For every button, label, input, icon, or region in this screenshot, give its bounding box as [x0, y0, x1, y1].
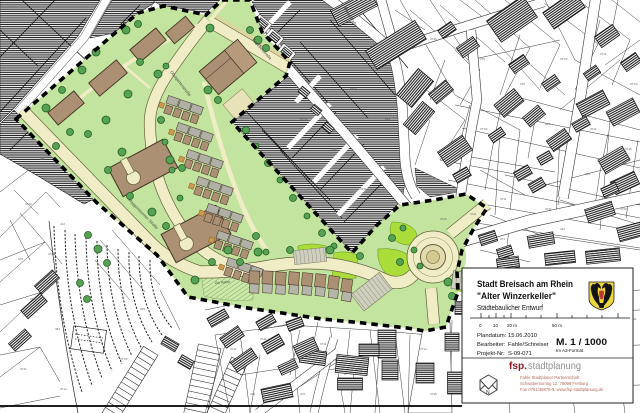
svg-text:375: 375 [520, 82, 525, 86]
svg-text:3741: 3741 [20, 367, 27, 371]
svg-text:377/2: 377/2 [120, 357, 128, 361]
svg-text:3720: 3720 [440, 217, 447, 221]
svg-text:10: 10 [493, 323, 499, 328]
svg-text:Städtebaulicher Entwurf: Städtebaulicher Entwurf [477, 305, 543, 312]
svg-text:Fahle/Schreiser: Fahle/Schreiser [508, 342, 549, 348]
svg-text:3741: 3741 [470, 212, 477, 216]
svg-text:381: 381 [55, 327, 60, 331]
svg-text:3712: 3712 [60, 387, 67, 391]
svg-text:Plandatum:: Plandatum: [477, 333, 507, 339]
svg-text:M. 1 / 1000: M. 1 / 1000 [556, 337, 607, 348]
svg-text:381: 381 [585, 172, 590, 176]
svg-text:3712: 3712 [350, 87, 357, 91]
svg-text:371: 371 [500, 237, 505, 241]
svg-text:3720: 3720 [25, 202, 32, 206]
svg-text:Bearbeiter:: Bearbeiter: [477, 342, 506, 348]
svg-text:369: 369 [140, 307, 145, 311]
svg-text:3711: 3711 [600, 52, 607, 56]
svg-text:377/2: 377/2 [300, 117, 308, 121]
svg-text:412: 412 [300, 392, 305, 396]
svg-text:"Alter Winzerkeller": "Alter Winzerkeller" [477, 290, 556, 301]
svg-text:3711: 3711 [320, 342, 327, 346]
svg-text:375: 375 [18, 257, 23, 261]
svg-text:412: 412 [560, 227, 565, 231]
svg-text:Fahle Stadtplaner Partnerschaf: Fahle Stadtplaner Partnerschaft [520, 375, 580, 380]
svg-text:3735: 3735 [430, 392, 437, 396]
svg-text:3735: 3735 [625, 147, 632, 151]
svg-text:Im A3-Format: Im A3-Format [556, 348, 584, 353]
svg-text:Stadt Breisach am Rhein: Stadt Breisach am Rhein [477, 278, 573, 289]
svg-text:3711: 3711 [48, 252, 55, 256]
svg-text:377/2: 377/2 [630, 82, 638, 86]
svg-text:3712: 3712 [30, 297, 37, 301]
svg-text:stadtplanung: stadtplanung [528, 361, 581, 372]
svg-text:412: 412 [545, 122, 550, 126]
svg-text:3711: 3711 [500, 197, 507, 201]
svg-text:3711: 3711 [590, 127, 597, 131]
svg-text:N: N [486, 390, 490, 396]
svg-text:20 m: 20 m [507, 323, 517, 328]
svg-text:412: 412 [60, 222, 65, 226]
svg-text:412: 412 [250, 392, 255, 396]
svg-text:3735: 3735 [290, 357, 297, 361]
svg-text:Fon 0761/36875-0, www.fsp-stad: Fon 0761/36875-0, www.fsp-stadtplanung.d… [520, 387, 604, 392]
svg-text:3711: 3711 [230, 347, 237, 351]
svg-text:50 m: 50 m [552, 323, 562, 328]
svg-text:3711: 3711 [360, 187, 367, 191]
svg-text:3720: 3720 [620, 207, 627, 211]
svg-text:377/2: 377/2 [480, 127, 488, 131]
svg-text:3712: 3712 [355, 367, 362, 371]
svg-text:375: 375 [480, 57, 485, 61]
svg-text:15.06.2010: 15.06.2010 [508, 333, 537, 339]
svg-text:369: 369 [40, 157, 45, 161]
svg-text:381: 381 [385, 117, 390, 121]
svg-text:3741: 3741 [545, 207, 552, 211]
svg-text:Schwabentorring 12, 79098 Frei: Schwabentorring 12, 79098 Freiburg [520, 381, 589, 386]
svg-text:3712: 3712 [420, 347, 427, 351]
svg-text:Projekt-Nr:: Projekt-Nr: [477, 351, 505, 357]
svg-text:fsp.: fsp. [509, 361, 527, 372]
svg-text:412: 412 [310, 197, 315, 201]
svg-text:3741: 3741 [330, 147, 337, 151]
svg-text:S-09-071: S-09-071 [508, 351, 532, 357]
svg-text:3735: 3735 [430, 37, 437, 41]
svg-text:377/2: 377/2 [560, 57, 568, 61]
svg-text:3741: 3741 [260, 337, 267, 341]
